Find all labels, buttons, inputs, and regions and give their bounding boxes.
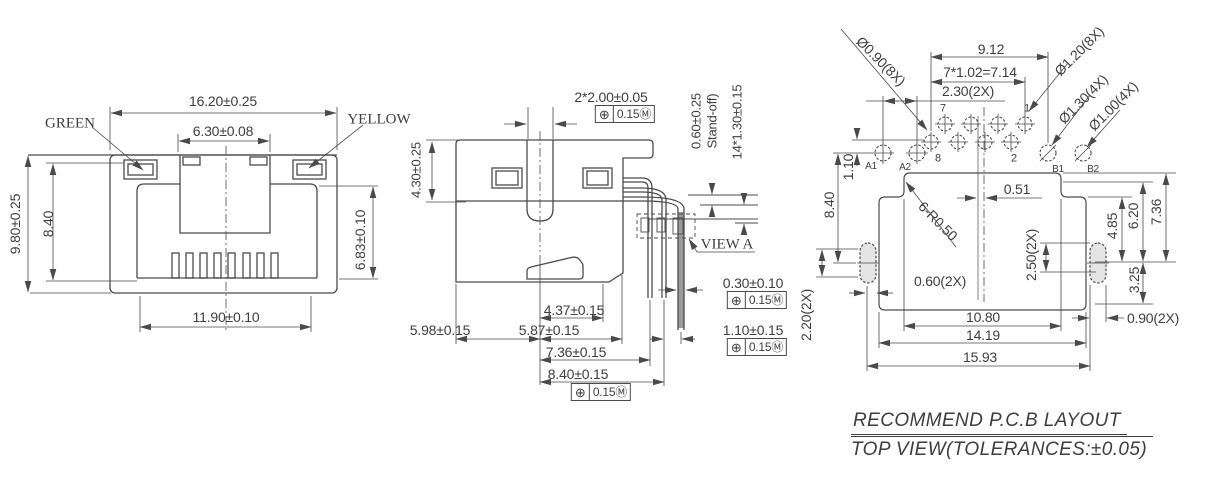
tolerance-frame-pin-pitch: ⊕ 0.15Ⓜ [727,338,787,356]
hole-b2-label: B2 [1087,165,1099,175]
tolerance-value: 0.15Ⓜ [746,339,786,355]
dim-shield-height-label: 4.30±0.25 [410,142,423,198]
dim-437-label: 4.37±0.15 [544,303,604,317]
dim-325-label: 3.25 [1127,267,1141,293]
pcb-outline [857,173,1109,310]
engineering-drawing-canvas: 16.20±0.25 GREEN YELLOW 6.30±0.08 9.80±0… [0,0,1206,488]
dim-pin-width-label: 0.30±0.10 [723,276,783,290]
dim-840-pcb-label: 8.40 [822,192,836,218]
title-line-1: RECOMMEND P.C.B LAYOUT [851,410,1127,435]
pin-8-label: 8 [935,154,941,165]
front-view-dimensions [28,107,378,332]
dim-overall-width-label: 16.20±0.25 [189,94,257,108]
position-symbol: ⊕ [596,106,614,122]
standoff-note-label: Stand-off) [706,94,719,149]
dim-736-pcb-label: 7.36 [1149,199,1163,225]
dim-1593-label: 15.93 [963,350,997,364]
drawing-title-block: RECOMMEND P.C.B LAYOUT TOP VIEW(TOLERANC… [851,410,1153,461]
pin-2-label: 2 [1011,154,1017,165]
dim-587-label: 5.87±0.15 [519,323,579,337]
dim-485-label: 4.85 [1105,213,1119,239]
dim-opening-width-label: 6.30±0.08 [193,124,253,138]
pcb-holes [872,114,1091,164]
led-green-label: GREEN [45,117,95,132]
dim-post-pitch-label: 2*2.00±0.05 [574,90,647,104]
tolerance-frame-840: ⊕ 0.15Ⓜ [571,383,631,401]
pin-7-label: 7 [940,104,946,115]
dim-pin-pitch-label: 1.10±0.15 [723,323,783,337]
position-symbol: ⊕ [572,384,590,400]
dim-090-label: 0.90(2X) [1127,311,1179,325]
dim-060-label: 0.60(2X) [914,274,966,288]
dim-110-pcb-label: 1.10 [841,154,855,180]
dim-1419-label: 14.19 [966,328,1000,342]
dim-840-label: 8.40±0.15 [548,367,608,381]
tolerance-frame-post-pitch: ⊕ 0.15Ⓜ [595,105,655,123]
dim-pitch-label: 7*1.02=7.14 [943,65,1017,79]
led-yellow-label: YELLOW [347,113,410,128]
tolerance-value: 0.15Ⓜ [746,292,786,308]
view-a-label: VIEW A [701,238,754,253]
hole-b1-label: B1 [1052,165,1064,175]
hole-a1-label: A1 [865,162,877,172]
dim-window-height-label: 8.40 [41,211,55,237]
dim-230-label: 2.30(2X) [942,84,994,98]
pin-1-label: 1 [1024,104,1030,115]
dim-1080-label: 10.80 [966,310,1000,324]
dim-620-label: 6.20 [1126,203,1140,229]
dim-736-label: 7.36±0.15 [546,345,606,359]
dim-pin-tail-label: 14*1.30±0.15 [731,85,744,160]
tolerance-value: 0.15Ⓜ [590,384,630,400]
dim-220-label: 2.20(2X) [799,289,813,341]
tolerance-value: 0.15Ⓜ [614,106,654,122]
hole-a2-label: A2 [899,163,911,173]
dim-912-label: 9.12 [978,42,1004,56]
position-symbol: ⊕ [728,339,746,355]
tolerance-frame-pin-width: ⊕ 0.15Ⓜ [727,291,787,309]
dim-250-label: 2.50(2X) [1024,229,1038,281]
front-view-body [28,155,337,293]
dim-standoff-label: 0.60±0.25 [690,93,703,149]
dim-body-height-label: 6.83±0.10 [353,210,367,270]
title-line-2: TOP VIEW(TOLERANCES:±0.05) [851,436,1153,461]
dim-bottom-width-label: 11.90±0.10 [193,310,260,324]
dim-overall-height-label: 9.80±0.25 [8,194,22,254]
dim-051-label: 0.51 [1004,182,1030,196]
position-symbol: ⊕ [728,292,746,308]
dim-598-label: 5.98±0.15 [410,323,470,337]
